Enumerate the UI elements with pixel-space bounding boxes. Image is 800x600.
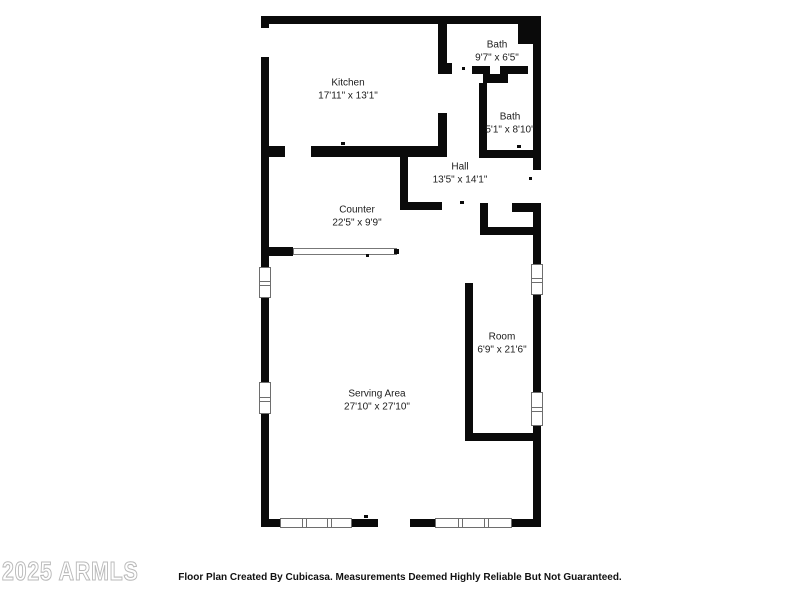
door-marker [341,142,345,145]
room-label-counter: Counter 22'5" x 9'9" [332,205,381,230]
room-label-bath-upper: Bath 9'7" x 6'5" [475,40,519,65]
window-mullion [532,278,542,283]
wall-segment [261,519,280,527]
wall-segment [410,519,435,527]
wall-segment [261,57,269,267]
window [280,518,352,528]
wall-segment [533,205,541,264]
window-mullion [260,397,270,402]
wall-segment [483,74,508,83]
wall-segment [500,66,528,74]
room-dims: 6'9" x 21'6" [477,344,526,357]
room-name: Serving Area [344,389,410,402]
floor-plan: Kitchen 17'11" x 13'1" Bath 9'7" x 6'5" … [0,0,800,600]
door-marker [460,201,464,204]
window [259,267,271,298]
counter-fixture [293,248,397,255]
room-dims: 22'5" x 9'9" [332,217,381,230]
window [531,264,543,295]
window-mullion [532,407,542,412]
window [531,392,543,426]
room-dims: 27'10" x 27'10" [344,401,410,414]
room-label-room: Room 6'9" x 21'6" [477,332,526,357]
room-label-serving-area: Serving Area 27'10" x 27'10" [344,389,410,414]
wall-segment [261,414,269,527]
disclaimer-text: Floor Plan Created By Cubicasa. Measurem… [0,572,800,583]
room-dims: 13'5" x 14'1" [433,174,488,187]
wall-segment [352,519,378,527]
wall-segment [438,113,447,157]
window [259,382,271,414]
room-dims: 5'1" x 8'10" [485,124,534,137]
door-marker [364,515,368,518]
door-marker [529,177,532,180]
wall-segment [533,24,541,170]
wall-segment [438,63,452,74]
wall-segment [480,227,533,235]
window-mullion [260,281,270,286]
room-dims: 17'11" x 13'1" [318,90,378,103]
wall-segment [261,16,269,28]
wall-segment [269,247,293,256]
counter-end-post [394,249,399,254]
door-marker [462,67,465,70]
wall-segment [465,433,541,441]
window [435,518,512,528]
room-name: Room [477,332,526,345]
wall-segment [479,150,541,158]
wall-segment [438,24,447,63]
room-name: Hall [433,162,488,175]
room-label-bath-lower: Bath 5'1" x 8'10" [485,112,534,137]
wall-segment [512,519,541,527]
room-dims: 9'7" x 6'5" [475,52,519,65]
wall-segment [261,298,269,382]
door-marker [366,254,369,257]
wall-segment [533,295,541,392]
window-mullion [458,519,463,527]
wall-segment [533,426,541,527]
wall-segment [261,16,541,24]
room-name: Counter [332,205,381,218]
wall-segment [465,283,473,441]
wall-segment [261,146,285,157]
window-mullion [302,519,307,527]
room-label-kitchen: Kitchen 17'11" x 13'1" [318,78,378,103]
room-label-hall: Hall 13'5" x 14'1" [433,162,488,187]
room-name: Bath [485,112,534,125]
wall-segment [512,203,541,212]
room-name: Kitchen [318,78,378,91]
wall-segment [400,202,442,210]
window-mullion [327,519,332,527]
window-mullion [484,519,489,527]
wall-segment [472,66,490,74]
door-marker [517,145,521,148]
wall-segment [311,146,447,157]
room-name: Bath [475,40,519,53]
